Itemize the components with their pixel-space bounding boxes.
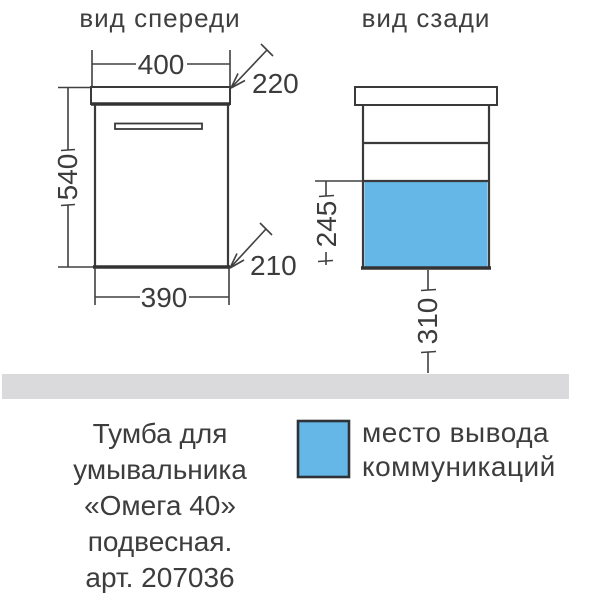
caption-line: подвесная. [10,524,310,560]
dimension-tick [421,352,436,353]
legend-color-square [298,421,349,477]
dim-width-bottom: 390 [95,268,229,313]
legend-label-line: коммуникаций [362,450,600,484]
dim-comm-zone-offset-value: 310 [412,298,443,345]
dim-height-value: 540 [52,154,83,201]
product-caption: Тумба для умывальника «Омега 40» подвесн… [10,416,310,596]
legend-label: место вывода коммуникаций [362,416,600,484]
caption-line: умывальника [10,452,310,488]
dimension-tick [61,205,75,206]
dim-width-bottom-value: 390 [141,282,188,313]
back-view-title: вид сзади [362,3,491,33]
legend-label-line: место вывода [362,416,600,450]
caption-line: «Омега 40» [10,488,310,524]
dim-depth-bottom: 210 [230,223,297,281]
front-countertop [91,87,230,104]
caption-line: арт. 207036 [10,560,310,596]
dim-depth-top: 220 [231,44,299,99]
dim-depth-bottom-value: 210 [250,250,297,281]
comm-zone-rect [365,182,488,267]
dimension-tick [318,261,333,262]
front-view-title: вид спереди [79,3,240,33]
dimension-tick [61,150,75,151]
dimension-tick [421,290,436,291]
dim-depth-top-value: 220 [252,68,299,99]
product-dimension-diagram: вид спереди 400 [0,0,600,600]
floor-bar [2,374,569,399]
dimension-tick [319,196,334,197]
back-countertop [355,87,497,105]
dim-comm-zone-offset: 310 [412,270,443,373]
dim-comm-zone-height-value: 245 [311,201,342,248]
dim-width-top: 400 [92,49,230,87]
dim-comm-zone-height: 245 [311,181,363,265]
front-view: вид спереди 400 [52,3,299,313]
front-cabinet-body [93,105,230,268]
legend-swatch [296,419,352,480]
back-view: вид сзади 245 [311,3,497,373]
door-handle [115,124,202,130]
technical-drawing: вид спереди 400 [0,0,600,410]
caption-line: Тумба для [10,416,310,452]
dim-height: 540 [52,88,93,268]
dim-width-top-value: 400 [138,49,185,80]
